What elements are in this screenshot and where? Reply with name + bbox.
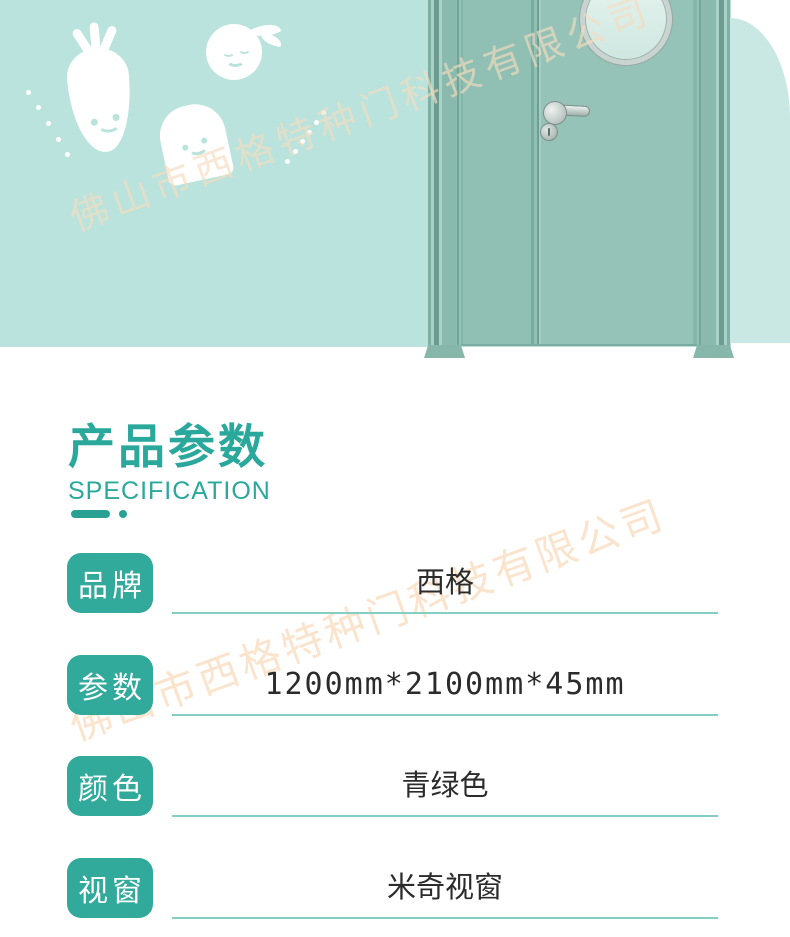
- spec-value: 1200mm*2100mm*45mm: [172, 655, 718, 715]
- spec-label-badge: 视窗: [67, 858, 153, 918]
- spec-value: 西格: [172, 553, 718, 613]
- spec-underline: [172, 917, 718, 919]
- spec-value: 青绿色: [172, 756, 718, 816]
- spec-label-badge: 品牌: [67, 553, 153, 613]
- divider-dash: [71, 510, 110, 518]
- page-subtitle: SPECIFICATION: [68, 477, 271, 506]
- spec-row-color: 颜色 青绿色: [0, 756, 790, 858]
- spec-label-badge: 颜色: [67, 756, 153, 816]
- product-spec-page: 佛山市西格特种门科技有限公司 佛山市西格特种门科技有限公司 产品参数 SPECI…: [0, 0, 790, 937]
- page-title: 产品参数: [68, 408, 268, 477]
- spec-label: 品牌: [74, 561, 146, 605]
- spec-row-size: 参数 1200mm*2100mm*45mm: [0, 655, 790, 757]
- spec-label: 颜色: [74, 764, 146, 808]
- spec-row-window: 视窗 米奇视窗: [0, 858, 790, 937]
- spec-label: 参数: [74, 663, 146, 707]
- spec-value: 米奇视窗: [172, 858, 718, 918]
- spec-section: 产品参数 SPECIFICATION 品牌 西格 参数 1200mm*2100m…: [0, 0, 790, 937]
- spec-underline: [172, 714, 718, 716]
- spec-underline: [172, 612, 718, 614]
- divider-dot: [119, 510, 127, 518]
- spec-label-badge: 参数: [67, 655, 153, 715]
- spec-label: 视窗: [74, 866, 146, 910]
- spec-underline: [172, 815, 718, 817]
- spec-row-brand: 品牌 西格: [0, 553, 790, 655]
